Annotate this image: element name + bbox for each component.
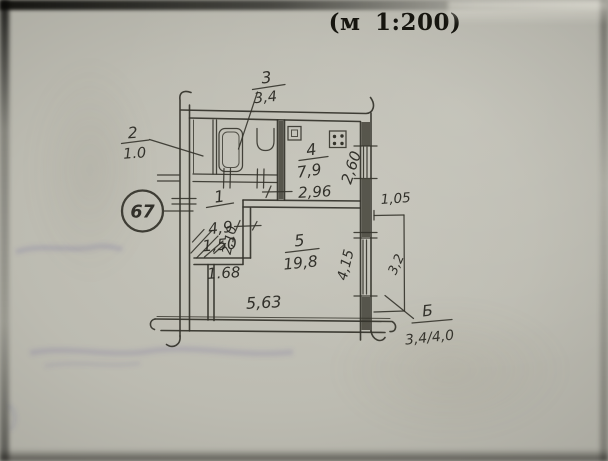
room-4-area: 7,9 bbox=[296, 160, 323, 181]
floor-plan-drawing: (м 1:200) bbox=[0, 0, 608, 461]
room-2-number: 2 bbox=[127, 124, 138, 143]
balcony-area: 3,4/4,0 bbox=[404, 327, 455, 348]
room-1-number: 1 bbox=[213, 186, 226, 206]
room-2-area: 1.0 bbox=[123, 145, 147, 163]
dim-living-depth: 4,15 bbox=[335, 248, 358, 282]
ink-bleedthrough bbox=[8, 246, 293, 430]
balcony-door-window bbox=[354, 233, 377, 297]
scanned-floor-plan-photo: (м 1:200) bbox=[0, 0, 608, 461]
room-3-number: 3 bbox=[260, 68, 272, 88]
room-5-area: 19,8 bbox=[282, 252, 318, 274]
dim-balcony-offset: 1,05 bbox=[380, 190, 411, 208]
dim-total-width: 5,63 bbox=[245, 292, 282, 313]
room-4-number: 4 bbox=[305, 139, 318, 159]
stove bbox=[330, 131, 347, 148]
apartment-number: 67 bbox=[130, 203, 155, 223]
apartment-number-badge: 67 bbox=[122, 191, 163, 232]
kitchen-sink bbox=[288, 127, 301, 141]
partitions bbox=[158, 120, 361, 321]
room-3-area: 3,4 bbox=[253, 89, 278, 107]
dim-kitchen-width: 2,96 bbox=[298, 182, 332, 202]
dim-closet-width: 1,50 bbox=[202, 235, 238, 256]
balcony-label: Б bbox=[421, 302, 433, 321]
scale-note: (м 1:200) bbox=[329, 9, 462, 36]
bathtub bbox=[219, 129, 243, 172]
room-5-number: 5 bbox=[293, 231, 305, 251]
toilet bbox=[257, 129, 274, 151]
dim-lower-width: 1.68 bbox=[207, 263, 241, 283]
